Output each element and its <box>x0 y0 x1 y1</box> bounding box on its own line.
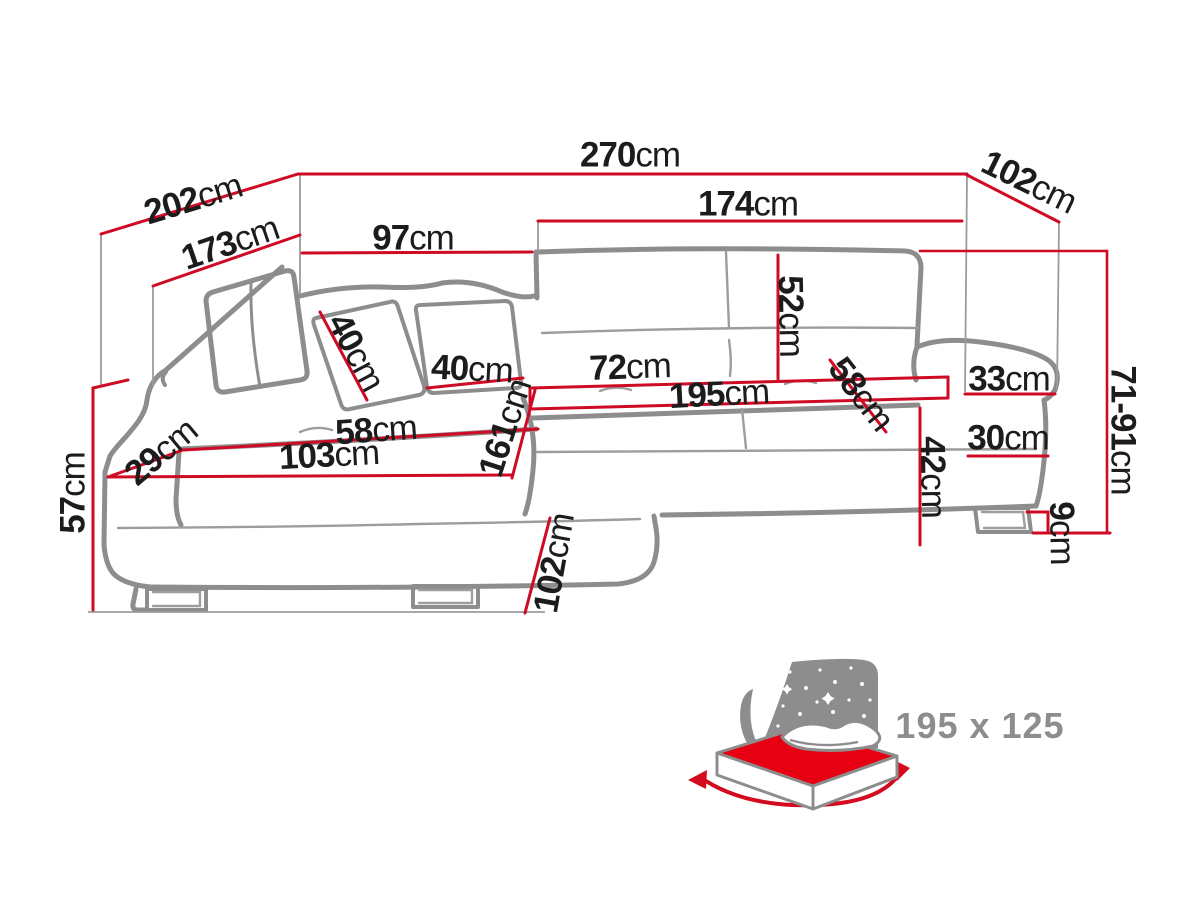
dim-9: 9cm <box>1044 501 1080 565</box>
sofa-seams <box>118 252 1036 606</box>
headrest-crease <box>251 283 260 387</box>
dim-42: 42cm <box>915 436 951 518</box>
tuft-1 <box>600 388 631 391</box>
dim-195: 195cm <box>668 374 770 414</box>
bed-icon <box>688 659 910 809</box>
sofa-junction-edge <box>536 252 537 298</box>
right-base-seam <box>537 449 1036 452</box>
dim-174: 174cm <box>698 187 798 222</box>
guide-right-corner <box>965 176 967 392</box>
backrest-seam-v <box>726 252 729 328</box>
leg2-inner <box>419 590 472 603</box>
sofa-armrest-dip <box>914 347 917 380</box>
dim-97: 97cm <box>372 221 454 256</box>
sofa-dimension-diagram: 270cm 202cm 173cm 97cm 174cm 102cm 52cm … <box>0 0 1200 900</box>
dim-71-91: 71-91cm <box>1106 365 1141 494</box>
guide-102 <box>1057 222 1059 390</box>
dim-103: 103cm <box>278 435 380 475</box>
dim-57: 57cm <box>56 452 91 534</box>
sofa-outline <box>104 249 1057 610</box>
dim-270: 270cm <box>580 138 680 173</box>
arrowhead-left <box>688 770 707 789</box>
dim-52: 52cm <box>773 275 809 357</box>
leg1-inner <box>153 592 200 606</box>
bed-size-label: 195 x 125 <box>895 705 1064 747</box>
leg3-inner <box>982 512 1025 528</box>
sofa-back-slope <box>166 267 282 370</box>
leg1-foot <box>133 589 147 610</box>
dim-72: 72cm <box>589 348 672 386</box>
tuft-3 <box>300 428 332 432</box>
seat-divider <box>742 409 746 448</box>
line-57 <box>93 380 128 610</box>
backrest-crease <box>729 340 731 376</box>
dim-33: 33cm <box>968 362 1050 397</box>
sofa-back-panel-edge <box>300 282 534 297</box>
headrest-hinge <box>163 372 166 385</box>
dim-30: 30cm <box>967 421 1049 456</box>
